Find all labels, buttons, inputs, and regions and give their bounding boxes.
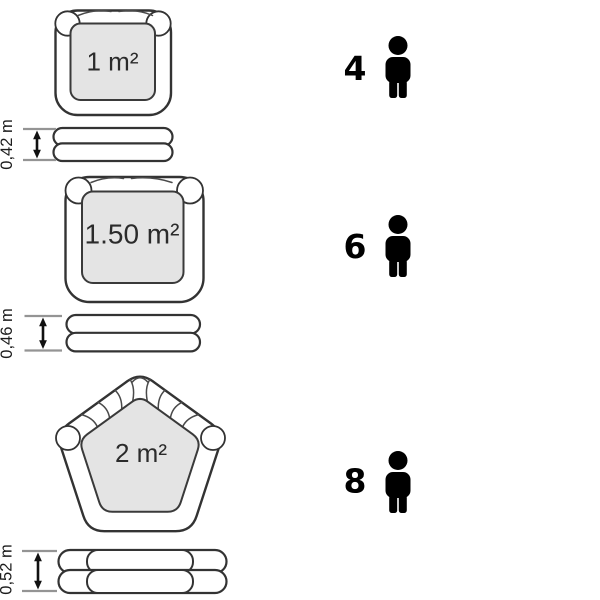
person-icon	[386, 215, 411, 277]
area-label: 1 m²	[87, 47, 139, 77]
corner-bulge-icon	[201, 426, 225, 450]
capacity-label: 4	[344, 49, 367, 88]
height-label: 0,52 m	[0, 544, 16, 594]
spa-top-view-medium: 1.50 m²	[66, 177, 204, 302]
spa-top-view-large: 2 m²	[56, 377, 225, 532]
capacity-small: 4	[344, 36, 411, 98]
area-label: 2 m²	[115, 438, 167, 468]
height-dimension-large: 0,52 m	[0, 544, 57, 594]
spa-side-view-large	[59, 550, 227, 593]
ring-bottom	[67, 333, 201, 352]
spa-row-medium: 1.50 m² 0,46 m 6	[0, 177, 411, 359]
height-label: 0,42 m	[0, 119, 16, 169]
person-icon	[386, 36, 411, 98]
spa-size-comparison-diagram: 1 m² 0,42 m 4	[0, 0, 600, 600]
ring-top	[67, 315, 201, 334]
height-label: 0,46 m	[0, 308, 16, 358]
area-label: 1.50 m²	[85, 219, 180, 250]
double-arrow-icon	[34, 553, 42, 590]
ring-bottom	[54, 143, 173, 161]
spa-side-view-medium	[67, 315, 201, 351]
double-arrow-icon	[33, 131, 41, 159]
capacity-medium: 6	[344, 215, 411, 277]
capacity-label: 6	[344, 227, 367, 266]
diagram-canvas: 1 m² 0,42 m 4	[0, 0, 600, 600]
spa-top-view-small: 1 m²	[55, 11, 171, 116]
spa-row-large: 2 m² 0,52 m 8	[0, 377, 411, 595]
height-dimension-small: 0,42 m	[0, 119, 56, 169]
capacity-label: 8	[344, 462, 367, 501]
double-arrow-icon	[39, 318, 47, 350]
height-dimension-medium: 0,46 m	[0, 308, 62, 358]
ring-bottom-segment	[87, 570, 193, 593]
person-icon	[386, 451, 411, 513]
capacity-large: 8	[344, 451, 411, 513]
spa-side-view-small	[54, 128, 173, 161]
spa-row-small: 1 m² 0,42 m 4	[0, 11, 411, 170]
corner-bulge-icon	[56, 426, 80, 450]
